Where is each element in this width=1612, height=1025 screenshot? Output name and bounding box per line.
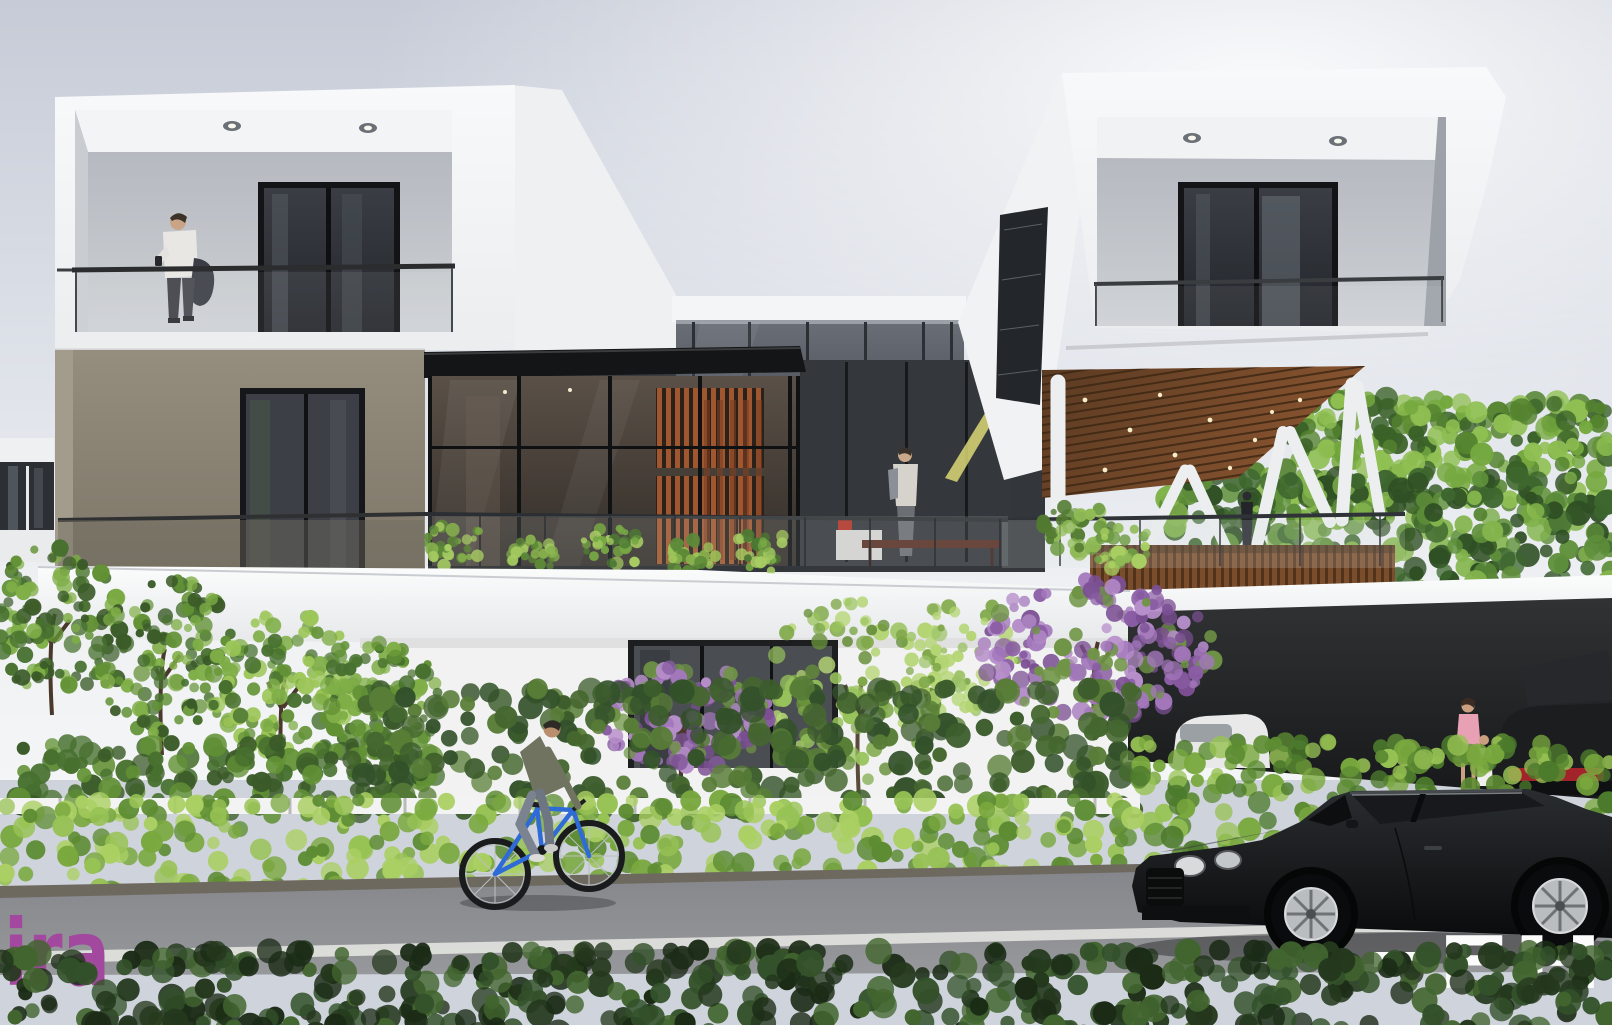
left-terrace-railing	[58, 514, 424, 572]
left-volume	[55, 85, 515, 350]
left-lower-facade	[55, 350, 425, 576]
architectural-render: ira FH	[0, 0, 1612, 1025]
left-balcony-railing	[57, 266, 455, 332]
right-balcony	[1094, 117, 1446, 326]
left-face-window	[996, 207, 1048, 405]
front-wheel	[1271, 874, 1351, 954]
render-canvas: ira FH	[0, 0, 1612, 1025]
neighbor-building	[0, 438, 54, 562]
left-balcony	[57, 110, 455, 332]
